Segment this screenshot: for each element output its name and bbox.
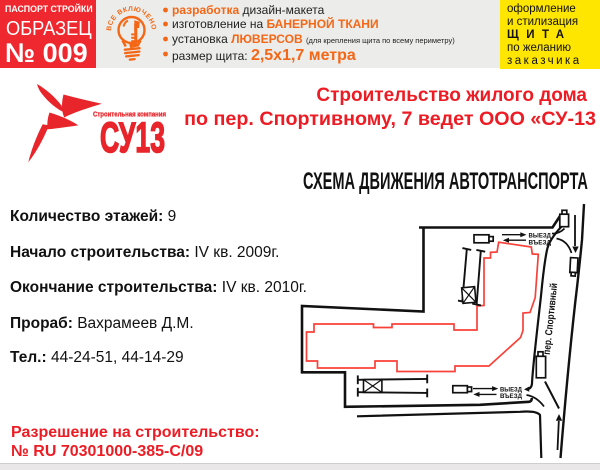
- svg-text:ВЫЕЗД: ВЫЕЗД: [529, 233, 552, 240]
- svg-text:ВЪЕЗД: ВЪЕЗД: [500, 393, 522, 400]
- svg-text:пер. Спортивный: пер. Спортивный: [542, 283, 560, 356]
- svg-text:ВСЕ ВКЛЮЧЕНО: ВСЕ ВКЛЮЧЕНО: [106, 6, 157, 31]
- svg-text:ВЪЕЗД: ВЪЕЗД: [529, 240, 552, 247]
